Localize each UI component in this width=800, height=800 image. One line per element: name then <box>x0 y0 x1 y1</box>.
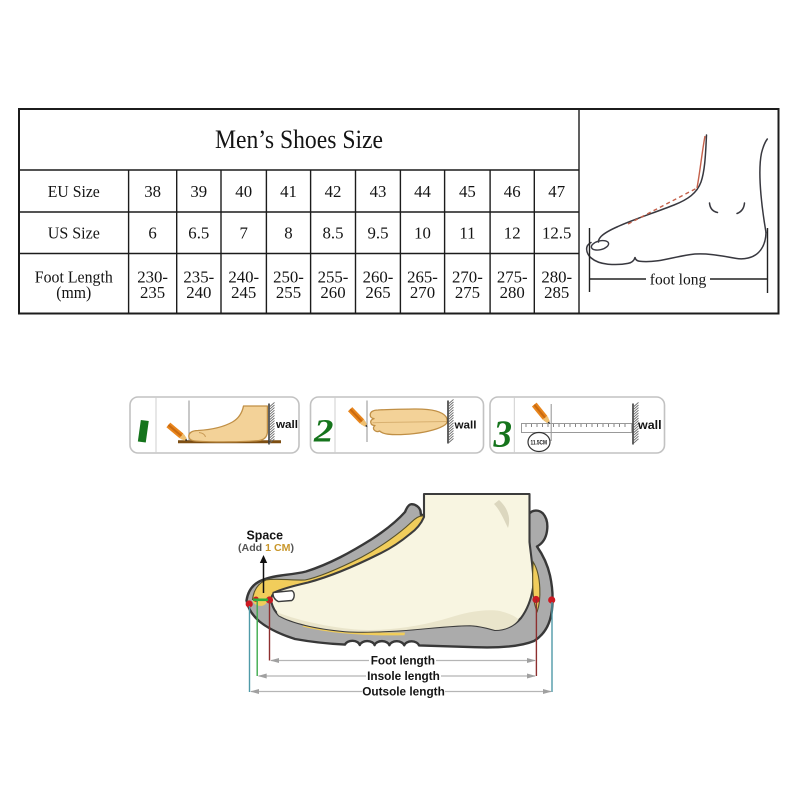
svg-text:275: 275 <box>455 283 480 302</box>
svg-text:260: 260 <box>320 283 345 302</box>
svg-text:EU Size: EU Size <box>48 182 100 201</box>
svg-text:11: 11 <box>459 223 475 242</box>
svg-text:US Size: US Size <box>48 223 100 242</box>
svg-text:Outsole length: Outsole length <box>362 685 445 699</box>
svg-text:265: 265 <box>365 283 390 302</box>
svg-text:Men’s Shoes Size: Men’s Shoes Size <box>215 125 383 154</box>
svg-text:Space: Space <box>247 528 284 543</box>
svg-text:Insole length: Insole length <box>367 669 440 683</box>
svg-text:12.5: 12.5 <box>542 223 571 242</box>
svg-text:9.5: 9.5 <box>368 223 389 242</box>
svg-text:47: 47 <box>548 182 565 201</box>
svg-text:8.5: 8.5 <box>323 223 344 242</box>
svg-text:2: 2 <box>313 414 334 450</box>
svg-text:38: 38 <box>144 182 161 201</box>
svg-text:43: 43 <box>370 182 387 201</box>
svg-text:39: 39 <box>190 182 207 201</box>
svg-text:7: 7 <box>240 223 248 242</box>
svg-text:255: 255 <box>276 283 301 302</box>
svg-text:44: 44 <box>414 182 431 201</box>
svg-text:6.5: 6.5 <box>188 223 209 242</box>
svg-text:6: 6 <box>148 223 156 242</box>
svg-text:40: 40 <box>235 182 252 201</box>
svg-text:11.5CM: 11.5CM <box>530 440 547 446</box>
svg-text:wall: wall <box>637 420 662 432</box>
svg-text:10: 10 <box>414 223 431 242</box>
svg-text:240: 240 <box>186 283 211 302</box>
svg-text:270: 270 <box>410 283 435 302</box>
svg-text:280: 280 <box>500 283 525 302</box>
svg-text:245: 245 <box>231 283 256 302</box>
svg-text:wall: wall <box>275 419 298 431</box>
svg-text:Foot length: Foot length <box>371 654 435 668</box>
svg-text:235: 235 <box>140 283 165 302</box>
svg-text:(mm): (mm) <box>56 283 91 302</box>
svg-text:41: 41 <box>280 182 297 201</box>
svg-text:12: 12 <box>504 223 521 242</box>
svg-text:(Add 1 CM): (Add 1 CM) <box>238 542 294 554</box>
svg-text:285: 285 <box>544 283 569 302</box>
svg-text:foot long: foot long <box>650 272 707 289</box>
svg-text:46: 46 <box>504 182 521 201</box>
svg-text:8: 8 <box>284 223 292 242</box>
svg-text:wall: wall <box>453 420 476 432</box>
svg-text:45: 45 <box>459 182 476 201</box>
svg-text:3: 3 <box>493 414 512 456</box>
svg-text:42: 42 <box>325 182 342 201</box>
